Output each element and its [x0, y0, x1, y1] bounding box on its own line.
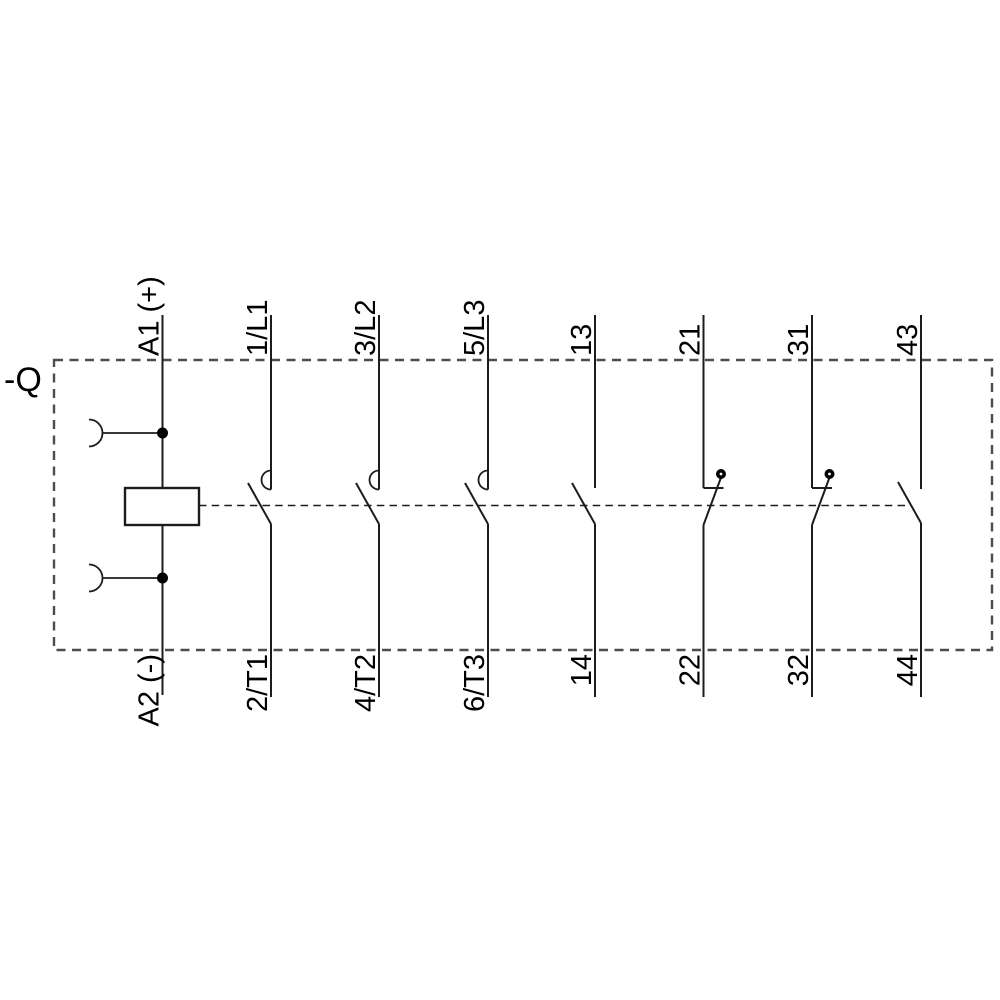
terminal-label-3l2: 3/L2 — [350, 300, 382, 356]
pole-21-contact-blade — [704, 478, 722, 526]
terminal-label-5l3: 5/L3 — [459, 300, 491, 356]
pole-l2-fixed-contact-arc — [370, 471, 380, 490]
terminal-label-14: 14 — [566, 654, 598, 686]
terminal-label-6t3: 6/T3 — [459, 654, 491, 712]
pole-13-contact-blade — [572, 483, 595, 524]
terminal-label-13: 13 — [566, 324, 598, 356]
terminal-label-a2: A2 (-) — [134, 654, 166, 727]
coil-lower-terminal-socket-arc — [89, 565, 103, 592]
pole-21-blade-pivot-dot-center — [720, 473, 723, 476]
pole-l1-fixed-contact-arc — [262, 471, 272, 490]
pole-43-contact-blade — [898, 482, 921, 523]
terminal-label-32: 32 — [783, 654, 815, 686]
schematic-canvas: -Q A1 (+) A2 (-) 1/L1 2/T1 3/L2 4/T2 — [0, 0, 1000, 1000]
terminal-label-2t1: 2/T1 — [242, 654, 274, 712]
pole-l3-fixed-contact-arc — [479, 471, 489, 490]
pole-aux-43-44: 43 44 — [892, 315, 924, 697]
terminal-label-22: 22 — [675, 654, 707, 686]
terminal-label-43: 43 — [892, 324, 924, 356]
coil-upper-junction-dot — [157, 428, 168, 439]
coil-lower-junction-dot — [157, 573, 168, 584]
terminal-label-31: 31 — [783, 324, 815, 356]
device-designation-label: -Q — [4, 361, 42, 399]
coil-column: A1 (+) A2 (-) — [89, 276, 199, 726]
terminal-label-1l1: 1/L1 — [242, 300, 274, 356]
contactor-wiring-diagram: -Q A1 (+) A2 (-) 1/L1 2/T1 3/L2 4/T2 — [0, 0, 1000, 1000]
coil-symbol — [125, 488, 199, 525]
coil-upper-terminal-socket-arc — [89, 420, 103, 447]
terminal-label-21: 21 — [675, 324, 707, 356]
terminal-label-a1: A1 (+) — [134, 276, 166, 356]
terminal-label-44: 44 — [892, 654, 924, 686]
pole-31-blade-pivot-dot-center — [828, 473, 831, 476]
pole-31-contact-blade — [812, 478, 830, 526]
terminal-label-4t2: 4/T2 — [350, 654, 382, 712]
